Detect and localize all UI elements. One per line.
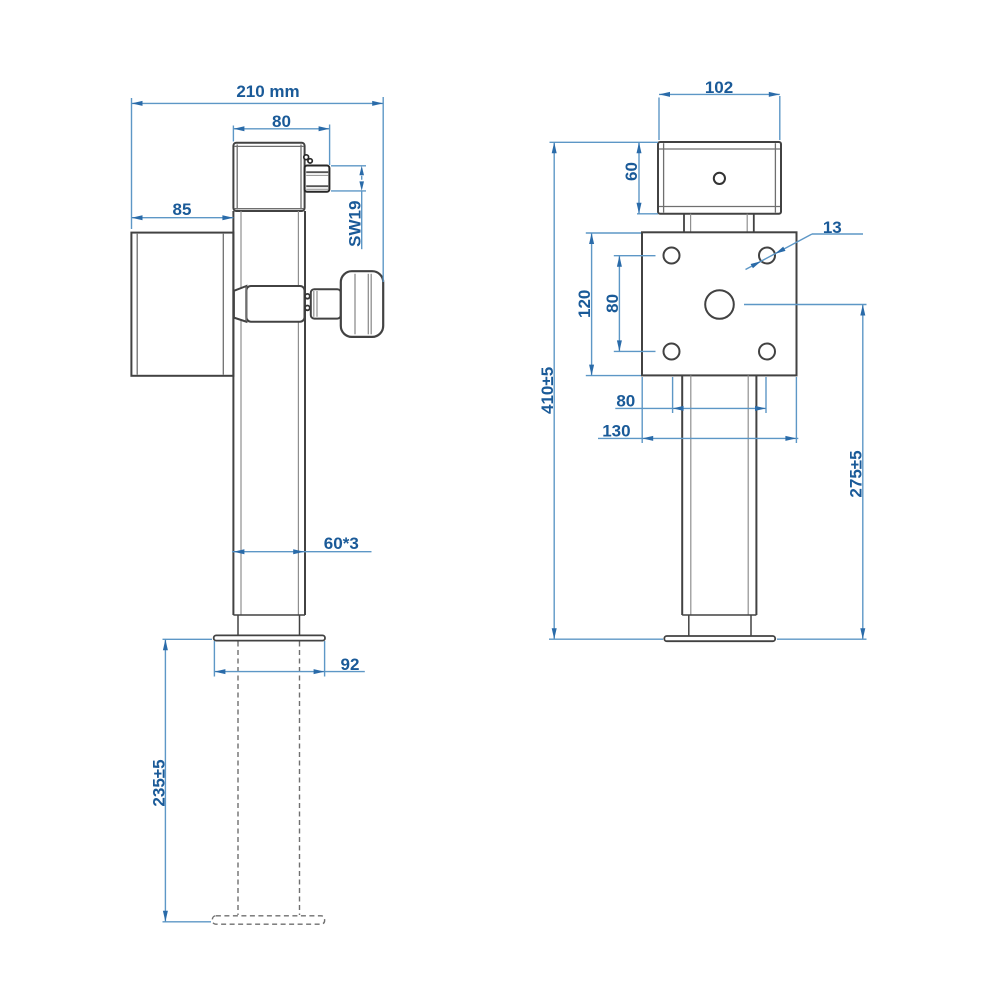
svg-text:SW19: SW19 [346, 201, 365, 247]
svg-text:120: 120 [575, 290, 594, 318]
svg-text:210 mm: 210 mm [236, 82, 299, 101]
svg-text:60*3: 60*3 [324, 534, 359, 553]
svg-text:235±5: 235±5 [149, 759, 168, 806]
svg-text:13: 13 [823, 218, 842, 237]
svg-text:275±5: 275±5 [847, 450, 866, 497]
svg-text:80: 80 [272, 112, 291, 131]
svg-text:80: 80 [616, 392, 635, 411]
svg-text:130: 130 [602, 421, 630, 440]
svg-text:92: 92 [341, 655, 360, 674]
svg-text:102: 102 [705, 78, 733, 97]
svg-text:410±5: 410±5 [538, 367, 557, 414]
svg-text:60: 60 [622, 162, 641, 181]
svg-text:80: 80 [603, 294, 622, 313]
svg-text:85: 85 [173, 200, 192, 219]
